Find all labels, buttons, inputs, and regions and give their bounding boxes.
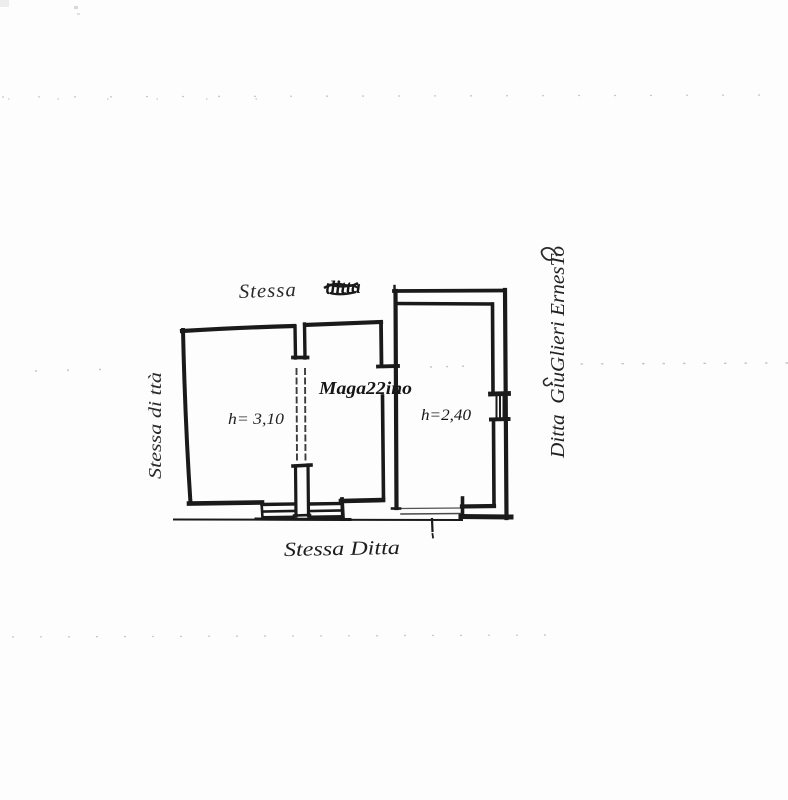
svg-text:Stessa: Stessa <box>238 279 297 303</box>
svg-text:h=2,40: h=2,40 <box>421 407 471 424</box>
svg-text:h= 3,10: h= 3,10 <box>228 411 284 428</box>
svg-text:Ditta GiuGlieri ErnesTo: Ditta GiuGlieri ErnesTo <box>547 246 569 459</box>
svg-text:Stessa di ttà: Stessa di ttà <box>145 372 165 479</box>
svg-text:Stessa Ditta: Stessa Ditta <box>284 537 400 561</box>
